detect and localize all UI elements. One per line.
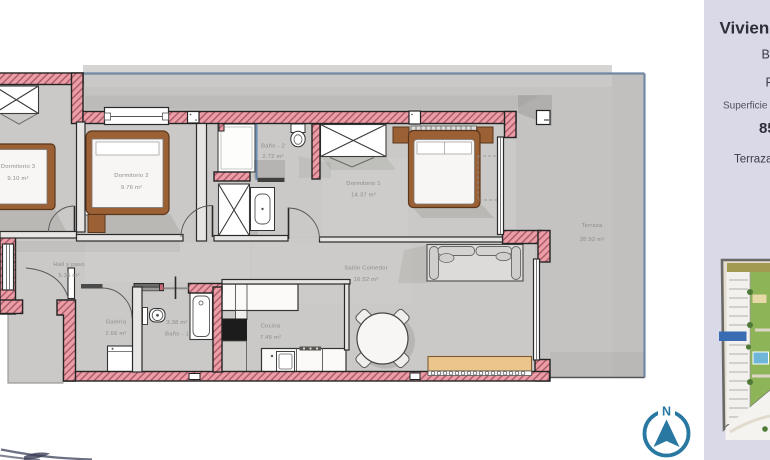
svg-text:Superficie construida: Superficie construida <box>723 101 770 112</box>
svg-text:Dormitorio 2: Dormitorio 2 <box>114 173 148 179</box>
svg-text:Baño - 2: Baño - 2 <box>261 144 285 150</box>
svg-text:14.37 m²: 14.37 m² <box>351 193 376 199</box>
svg-text:7.45 m²: 7.45 m² <box>260 335 281 341</box>
svg-text:Cocina: Cocina <box>261 324 281 330</box>
svg-text:Terraza: Terraza <box>581 223 603 229</box>
svg-text:Planta: Planta <box>766 76 770 90</box>
svg-text:Hall y paso: Hall y paso <box>53 262 85 268</box>
svg-text:Dormitorio 3: Dormitorio 3 <box>1 164 36 170</box>
svg-text:16.52 m²: 16.52 m² <box>354 277 379 283</box>
svg-text:Galería: Galería <box>106 320 127 326</box>
svg-text:Baño - 1: Baño - 1 <box>165 332 189 338</box>
svg-text:5.35 m²: 5.35 m² <box>58 273 79 279</box>
svg-text:Vivienda: Vivienda <box>720 19 770 38</box>
svg-text:9.10 m²: 9.10 m² <box>7 176 28 182</box>
svg-text:28.92 m²: 28.92 m² <box>580 237 605 243</box>
svg-text:N: N <box>662 405 671 419</box>
svg-text:Terraza: Terraza <box>734 154 770 166</box>
svg-text:3.38 m²: 3.38 m² <box>166 320 187 326</box>
svg-text:2.66 m²: 2.66 m² <box>105 331 126 337</box>
svg-text:85.79: 85.79 <box>759 120 770 137</box>
svg-text:Dormitorio 1: Dormitorio 1 <box>346 181 380 187</box>
svg-text:2.72 m²: 2.72 m² <box>262 154 283 160</box>
svg-text:9.76 m²: 9.76 m² <box>121 185 142 191</box>
svg-text:Bloque: Bloque <box>762 48 770 62</box>
svg-text:Salón Comedor: Salón Comedor <box>344 266 388 272</box>
